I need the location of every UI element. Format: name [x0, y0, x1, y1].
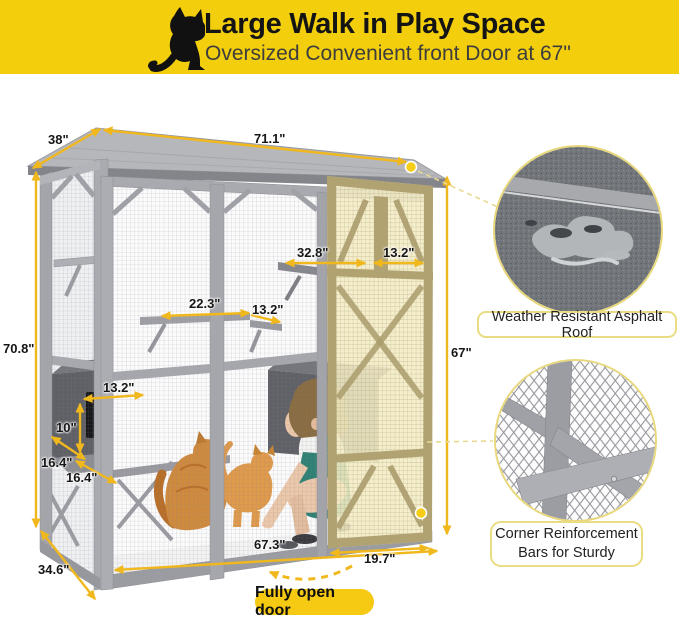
dim-door-height: 67"	[451, 345, 472, 360]
roof-callout-label: Weather Resistant Asphalt Roof	[477, 311, 677, 338]
dim-roof-depth: 38"	[48, 132, 69, 147]
dim-house-depth-a: 16.4"	[41, 455, 72, 470]
dim-base-width: 67.3"	[254, 537, 285, 552]
corner-callout-line2: Bars for Sturdy	[518, 544, 615, 563]
dim-door-width: 19.7"	[364, 551, 395, 566]
dim-house-width: 13.2"	[103, 380, 134, 395]
corner-detail-photo	[494, 359, 657, 522]
fully-open-door-text: Fully open door	[255, 584, 374, 620]
dim-roof-width: 71.1"	[254, 131, 285, 146]
dim-house-height: 10"	[56, 420, 77, 435]
dim-mid-shelf-span: 22.3"	[189, 296, 220, 311]
product-image: Large Walk in Play Space Oversized Conve…	[0, 0, 679, 617]
corner-callout-label: Corner Reinforcement Bars for Sturdy	[490, 521, 643, 567]
dim-house-depth-b: 16.4"	[66, 470, 97, 485]
asphalt-roof-texture	[495, 147, 661, 313]
door-swing-arrow	[270, 566, 352, 579]
fully-open-door-badge: Fully open door	[255, 589, 374, 615]
corner-callout-line1: Corner Reinforcement	[495, 525, 638, 544]
dim-upper-shelf-door: 13.2"	[383, 245, 414, 260]
roof-detail-photo	[493, 145, 663, 315]
roof-callout-text: Weather Resistant Asphalt Roof	[479, 309, 675, 341]
callout-dot-roof	[406, 162, 417, 173]
dim-total-height: 70.8"	[3, 341, 34, 356]
dim-base-depth: 34.6"	[38, 562, 69, 577]
callout-dot-door	[416, 508, 427, 519]
corner-bars-detail	[496, 361, 655, 520]
dim-upper-shelf-span: 32.8"	[297, 245, 328, 260]
door-panel	[327, 176, 433, 548]
dim-mid-shelf-small: 13.2"	[252, 302, 283, 317]
